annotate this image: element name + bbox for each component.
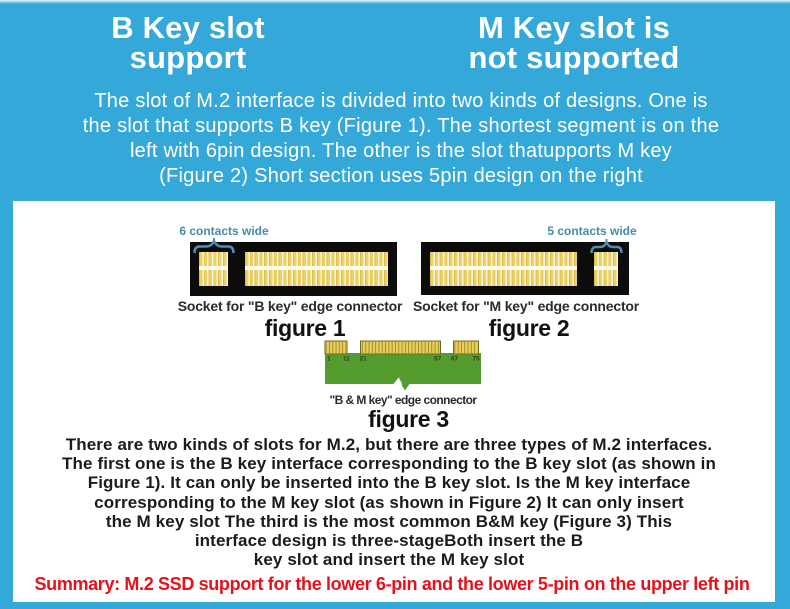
svg-text:11: 11 xyxy=(343,356,350,363)
svg-text:1: 1 xyxy=(327,356,331,363)
svg-text:67: 67 xyxy=(451,356,459,363)
svg-text:57: 57 xyxy=(434,356,442,363)
svg-text:75: 75 xyxy=(473,356,481,363)
svg-text:21: 21 xyxy=(360,356,368,363)
